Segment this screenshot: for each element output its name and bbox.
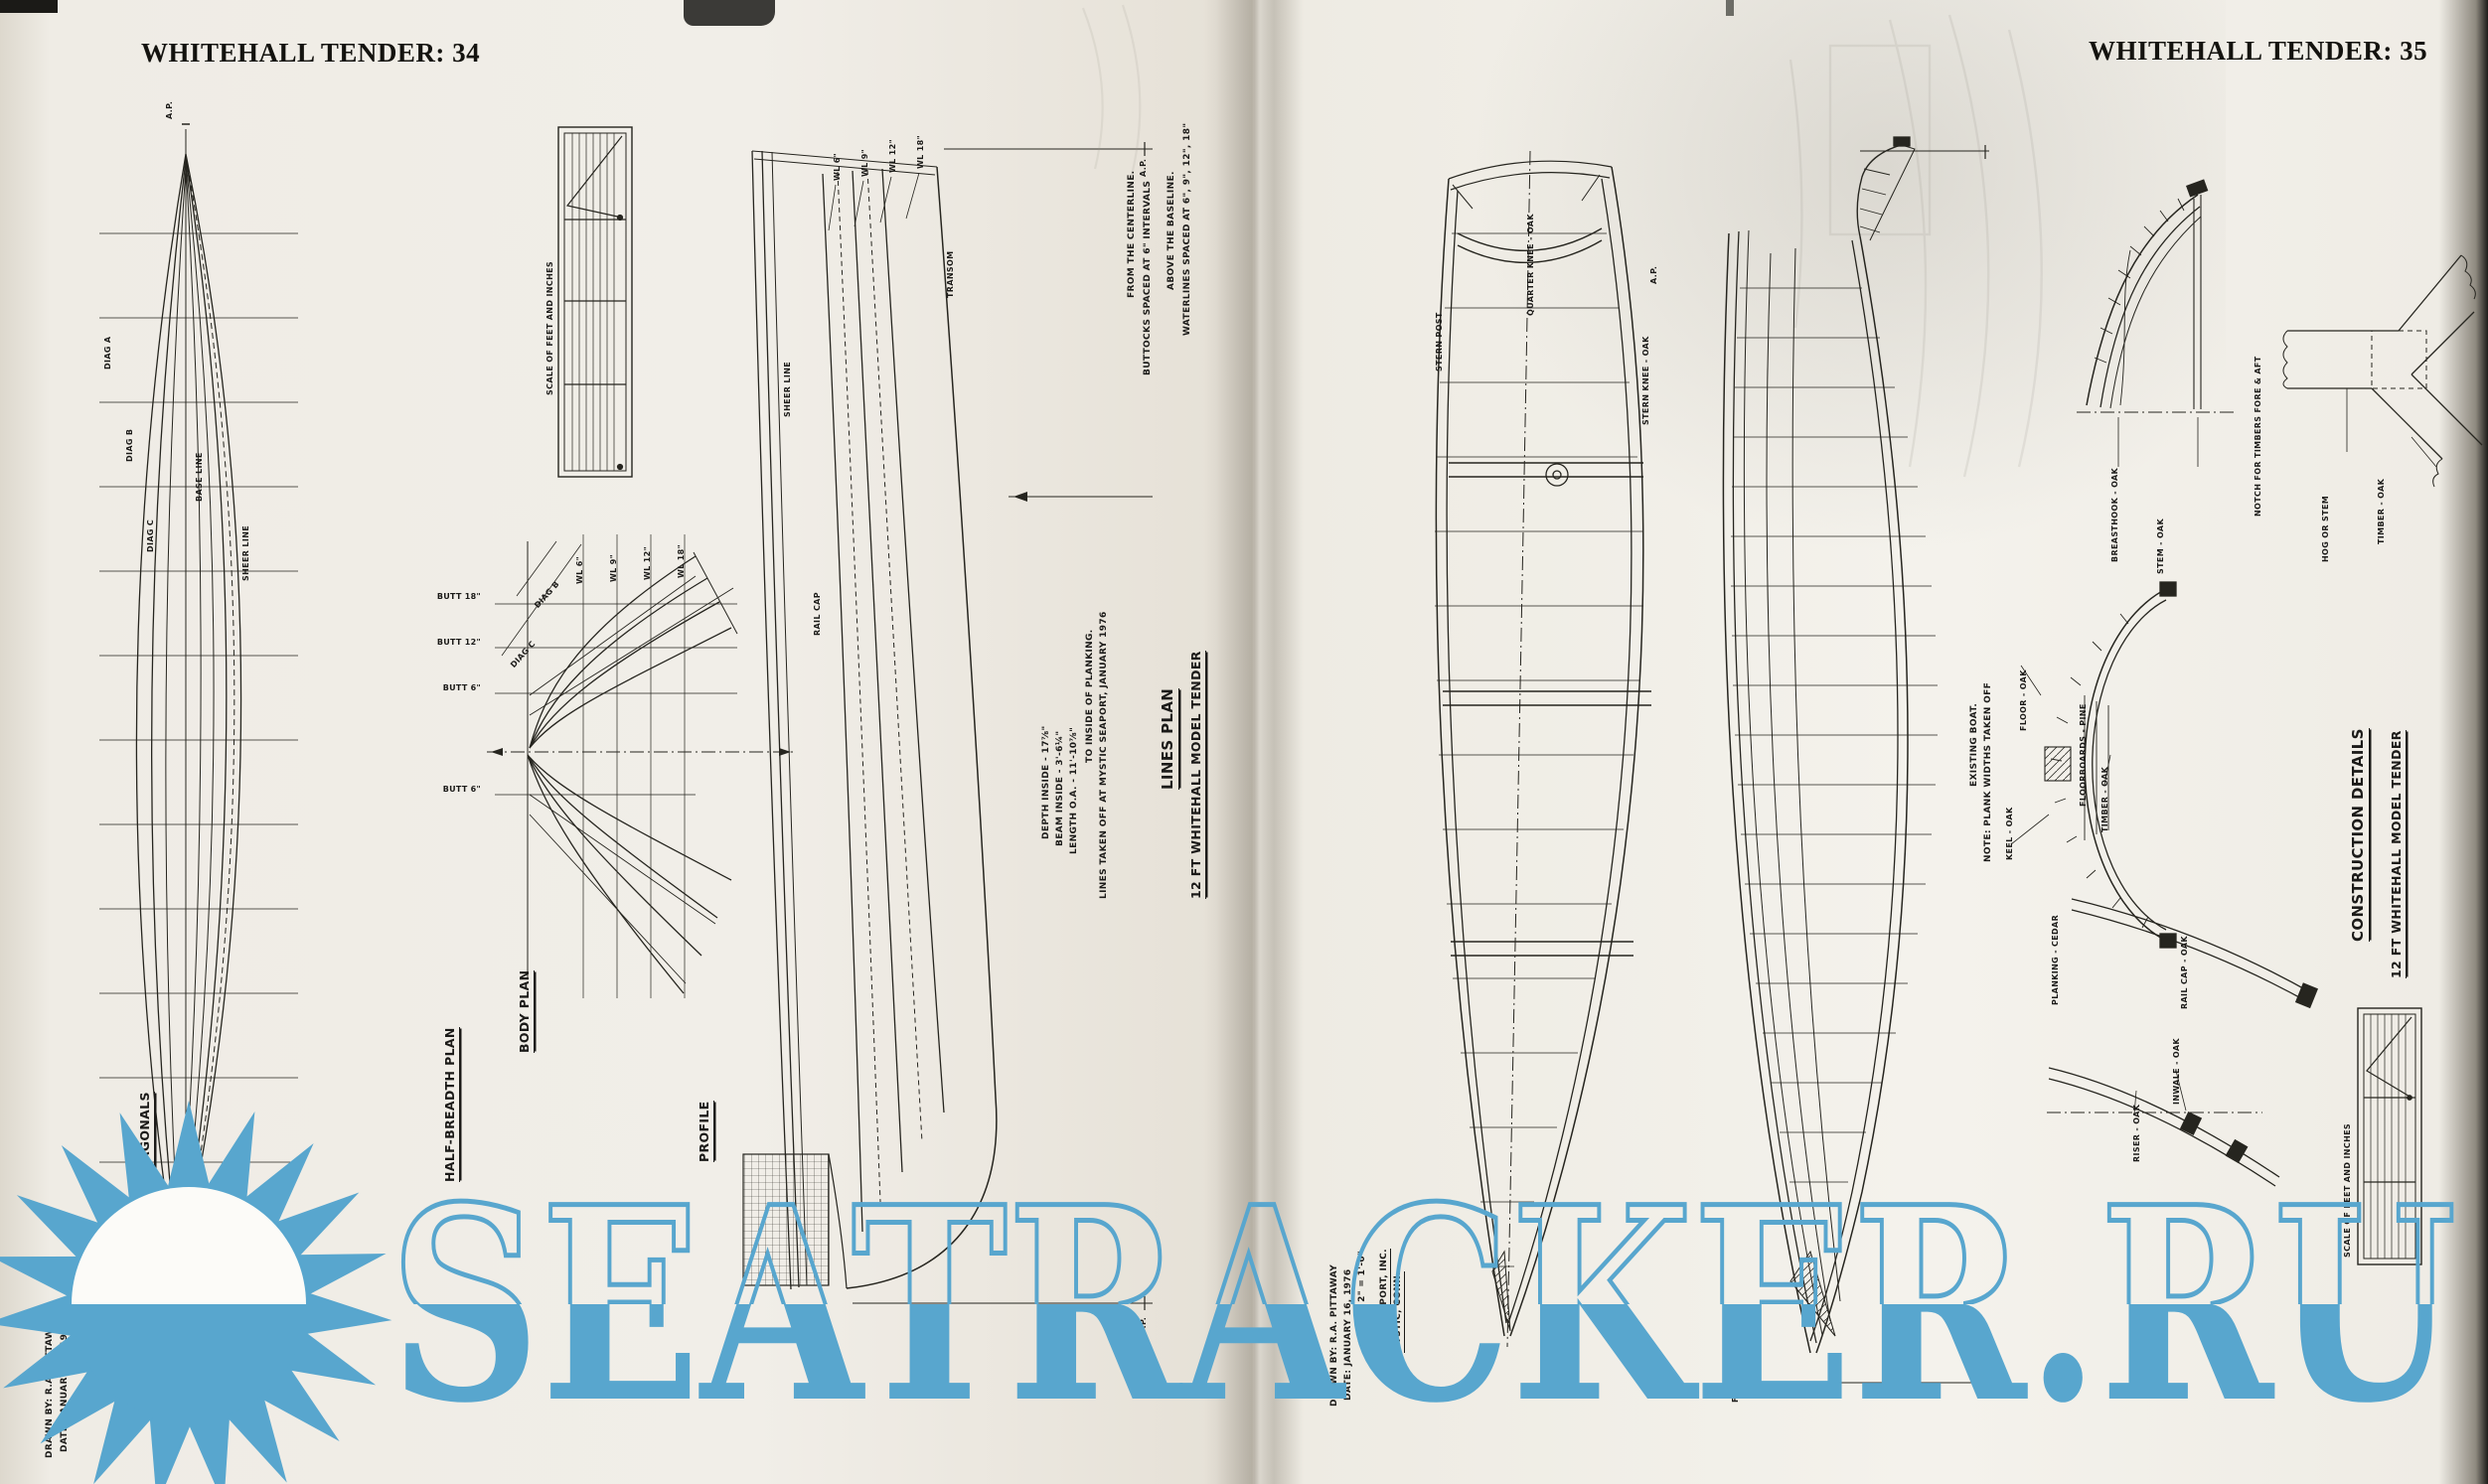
stern-knee-label: STERN KNEE - OAK (1641, 336, 1650, 425)
credit-organization: MYSTIC, CONN. (103, 1245, 115, 1326)
bleed-through-marks (1790, 15, 2042, 477)
aft-perpendicular-label: A.P. (1139, 159, 1148, 177)
fwd-perpendicular-label: F.P. (1731, 1387, 1740, 1403)
rail-cap-label: RAIL CAP - OAK (2180, 936, 2189, 1009)
credit-scale: SCALE: 2" = 1'-0" (75, 1270, 84, 1363)
timber-label: TIMBER - OAK (2100, 767, 2109, 832)
timber-label: TIMBER - OAK (2377, 479, 2386, 544)
half-breadth-plan-title: HALF-BREADTH PLAN (442, 1027, 460, 1182)
breasthook-label: BREASTHOOK - OAK (2110, 468, 2119, 562)
buttock-label: BUTT 6" (395, 785, 481, 794)
keel-notch-detail (2283, 255, 2482, 487)
waterline-label: WL 6" (833, 153, 842, 181)
scale-caption-right: SCALE OF FEET AND INCHES (2343, 1123, 2352, 1258)
drawing-title: 12 FT WHITEHALL MODEL TENDER (2389, 730, 2407, 978)
waterline-label: WL 9" (860, 149, 869, 177)
credit-organization: MYSTIC SEAPORT (117, 1241, 129, 1333)
timbers (1731, 288, 1938, 1182)
waterlines-note: ABOVE THE BASELINE. (1166, 171, 1176, 290)
sheer-line-label: SHEER LINE (241, 525, 250, 581)
page-number-heading-left: WHITEHALL TENDER: 34 (141, 38, 480, 69)
scale-caption-left: SCALE OF FEET AND INCHES (545, 261, 554, 395)
quarter-knee-label: QUARTER KNEE - OAK (1526, 214, 1535, 316)
credit-organization: MYSTIC SEAPORT, INC. (1379, 1249, 1391, 1369)
floor-label: FLOOR - OAK (2019, 669, 2028, 731)
buttock-label: BUTT 18" (395, 592, 481, 601)
notch-label: NOTCH FOR TIMBERS FORE & AFT (2254, 356, 2262, 517)
credit-organization: MYSTIC, CONN. (1393, 1271, 1405, 1353)
waterline-label: WL 9" (609, 554, 618, 582)
buttocks-note: BUTTOCKS SPACED AT 6" INTERVALS (1143, 181, 1153, 375)
waterline-label: WL 6" (575, 556, 584, 584)
aft-perpendicular-label: A.P. (165, 101, 174, 119)
waterline-label: WL 12" (643, 546, 652, 580)
lines-taken-note: LINES TAKEN OFF AT MYSTIC SEAPORT, JANUA… (1099, 611, 1109, 899)
credit-date: DATE: JANUARY 16, 1976 (1343, 1268, 1353, 1401)
base-line-label: BASE LINE (195, 452, 204, 502)
waterline-label: WL 12" (888, 139, 897, 173)
depth-dimension: DEPTH INSIDE - 17⅞" (1041, 725, 1051, 839)
half-breadth-plan (99, 124, 298, 1299)
credit-drawn-by: DRAWN BY: R.A. PITTAWAY (45, 1316, 55, 1458)
fwd-perpendicular-label: F.P. (1139, 1317, 1148, 1333)
waterlines-note: WATERLINES SPACED AT 6", 9", 12", 18" (1182, 123, 1192, 336)
inboard-profile-view (1723, 137, 1989, 1390)
floorboards-label: FLOORBOARDS - PINE (2079, 703, 2088, 807)
stern-post-label: STERN POST (1435, 312, 1444, 371)
page-number-heading-right: WHITEHALL TENDER: 35 (2089, 36, 2427, 67)
credit-scale: SCALE: 2" = 1'-0" (1357, 1251, 1367, 1343)
sheer-line-label: SHEER LINE (783, 362, 792, 417)
waterline-label: WL 18" (677, 544, 686, 578)
planking-label: PLANKING - CEDAR (2051, 915, 2060, 1005)
construction-details-drawing (1254, 0, 2488, 1484)
diagonals-title: DIAGONALS (137, 1092, 155, 1177)
waterline-label: WL 18" (916, 135, 925, 169)
profile-title: PROFILE (697, 1101, 714, 1162)
midship-section-detail (2011, 582, 2176, 948)
buttock-label: BUTT 12" (395, 638, 481, 647)
scale-bar (558, 127, 632, 477)
buttocks-note: FROM THE CENTERLINE. (1127, 171, 1137, 298)
buttock-label: BUTT 6" (395, 683, 481, 692)
book-spread: WHITEHALL TENDER: 34 DIAG A DIAG B DIAG … (0, 0, 2488, 1484)
diagonal-b-label: DIAG B (125, 429, 134, 462)
credit-drawn-by: DRAWN BY: R.A. PITTAWAY (1329, 1264, 1339, 1407)
construction-details-title: CONSTRUCTION DETAILS (2349, 728, 2370, 942)
drawing-title: 12 FT WHITEHALL MODEL TENDER (1188, 651, 1206, 899)
lines-taken-note: TO INSIDE OF PLANKING. (1085, 629, 1095, 763)
rail-cap-label: RAIL CAP (813, 592, 822, 636)
diagonal-c-label: DIAG C (146, 519, 155, 552)
keel-label: KEEL - OAK (2005, 807, 2014, 860)
aft-perpendicular-label: A.P. (1649, 266, 1658, 284)
transom-label: TRANSOM (946, 251, 955, 298)
hog-label: HOG OR STEM (2321, 496, 2330, 562)
riser-label: RISER - OAK (2132, 1105, 2141, 1162)
construction-plan-view (1435, 151, 1651, 1347)
scale-bar (2358, 1008, 2421, 1264)
lines-plan-title: LINES PLAN (1159, 688, 1179, 790)
plank-widths-note: EXISTING BOAT. (1969, 703, 1979, 787)
beam-dimension: BEAM INSIDE - 3'-6¼" (1055, 731, 1065, 846)
credit-date: DATE: JANUARY 16, 1976 (60, 1320, 70, 1452)
stem-detail (2077, 180, 2238, 467)
diagonal-a-label: DIAG A (103, 337, 112, 370)
inwale-label: INWALE - OAK (2172, 1038, 2181, 1105)
plank-widths-note: NOTE: PLANK WIDTHS TAKEN OFF (1983, 682, 1993, 862)
body-plan-title: BODY PLAN (517, 970, 535, 1053)
stem-label: STEM - OAK (2156, 519, 2165, 574)
thwarts (1443, 228, 1651, 956)
bleed-through-marks (1083, 5, 1140, 179)
frames (1435, 233, 1643, 1266)
length-dimension: LENGTH O.A. - 11'-10⅞" (1069, 727, 1079, 854)
lines-plan-drawing (0, 0, 1254, 1484)
